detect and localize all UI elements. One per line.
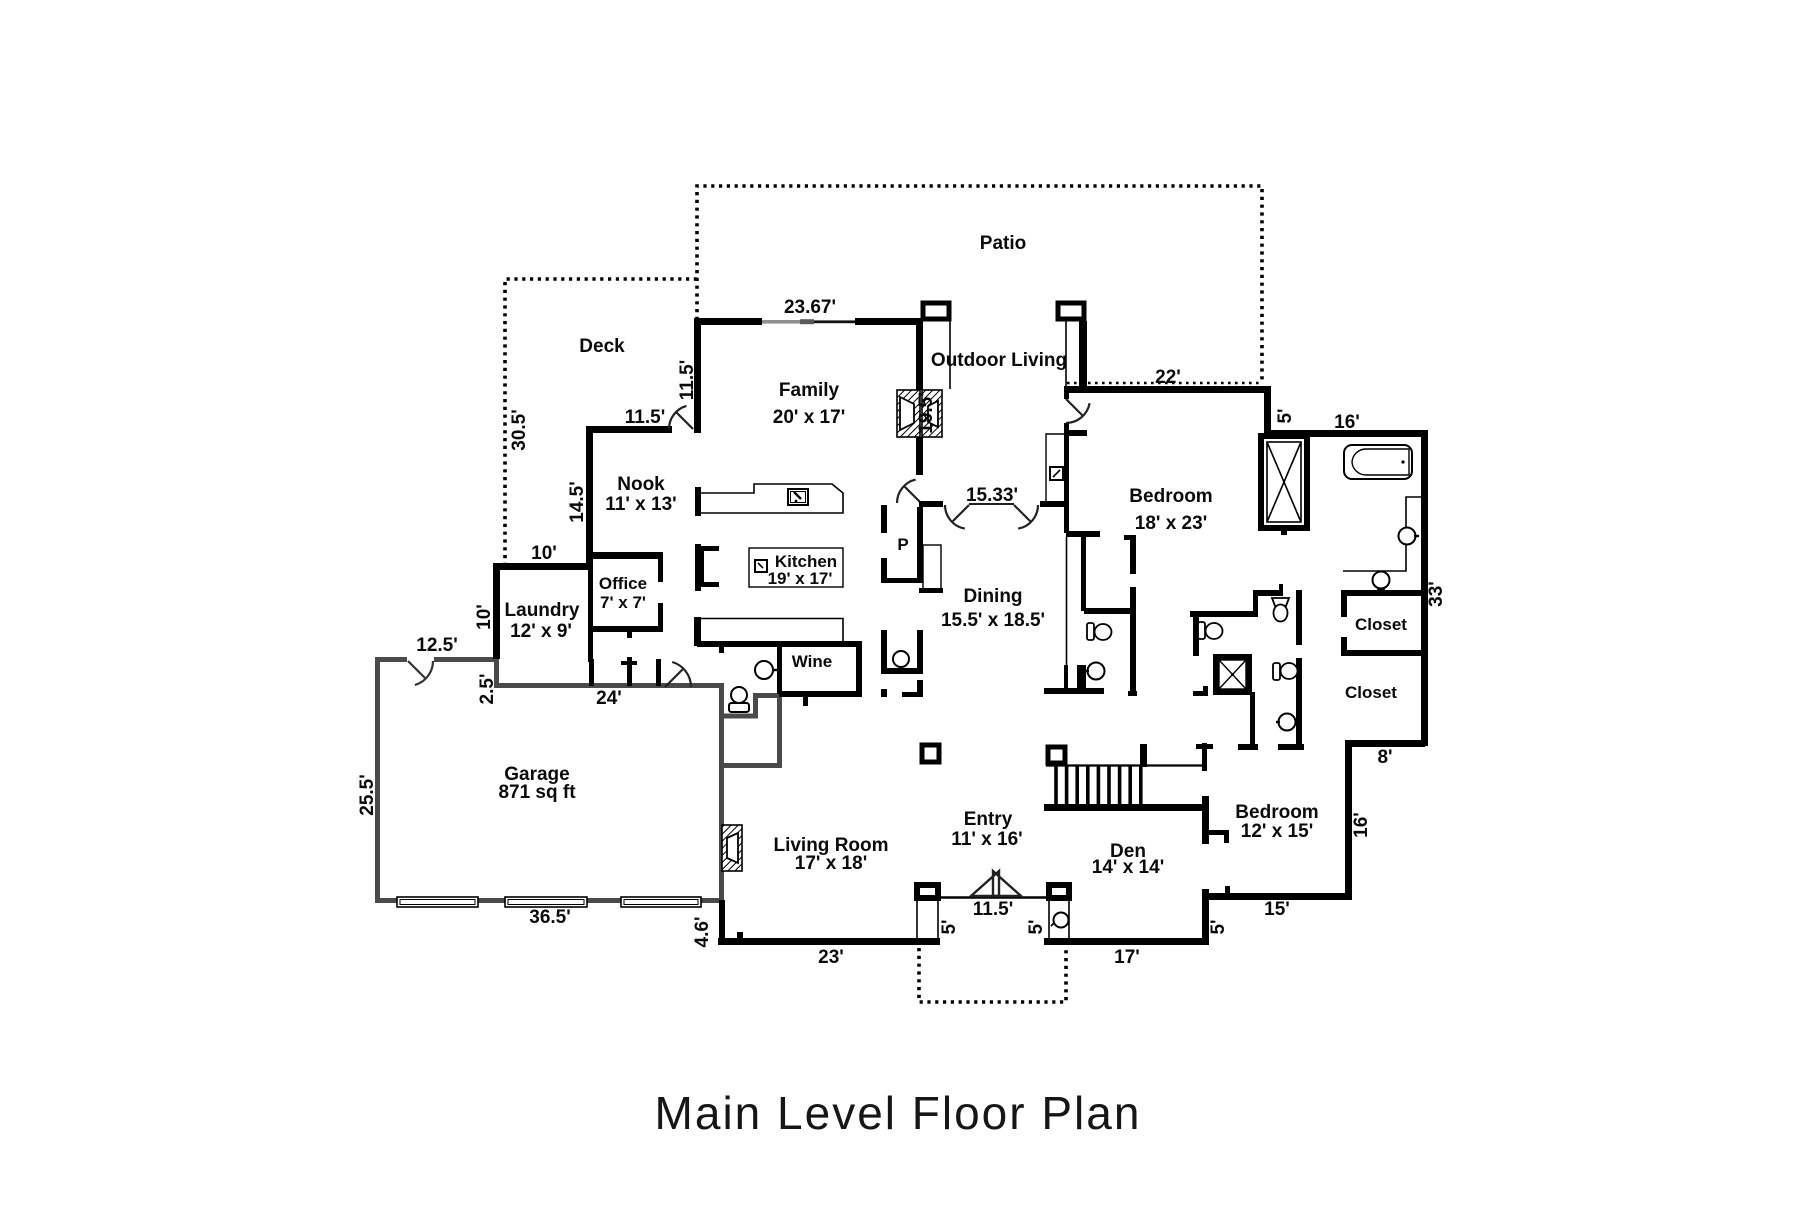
svg-text:11.5': 11.5' (677, 360, 698, 400)
svg-text:Closet: Closet (1355, 615, 1407, 634)
svg-text:20' x 17': 20' x 17' (773, 407, 845, 428)
svg-text:16': 16' (1351, 812, 1372, 838)
svg-text:Bedroom: Bedroom (1235, 802, 1318, 823)
svg-text:12.5': 12.5' (416, 635, 458, 656)
svg-text:2.5': 2.5' (477, 674, 498, 705)
svg-text:14.5': 14.5' (567, 481, 588, 523)
svg-text:17': 17' (1114, 947, 1140, 968)
svg-text:11' x 16': 11' x 16' (951, 829, 1022, 850)
svg-text:19' x 17': 19' x 17' (768, 569, 833, 588)
svg-text:Office: Office (599, 574, 647, 593)
svg-text:5': 5' (939, 919, 960, 934)
svg-text:8': 8' (1377, 747, 1392, 768)
svg-text:10': 10' (531, 543, 557, 564)
svg-text:Nook: Nook (617, 474, 665, 495)
svg-text:Patio: Patio (980, 233, 1026, 254)
svg-text:11.5': 11.5' (625, 407, 665, 428)
svg-text:16': 16' (1334, 412, 1360, 433)
svg-text:Bedroom: Bedroom (1129, 486, 1212, 507)
svg-text:4.6': 4.6' (692, 917, 713, 948)
svg-text:25.5': 25.5' (357, 774, 378, 816)
svg-text:5': 5' (1275, 408, 1296, 423)
svg-text:P: P (897, 535, 908, 554)
svg-text:Wine: Wine (792, 652, 832, 671)
svg-text:Family: Family (779, 380, 840, 401)
svg-text:Main Level Floor Plan: Main Level Floor Plan (655, 1087, 1142, 1139)
svg-text:17' x 18': 17' x 18' (795, 853, 867, 874)
svg-text:30.5': 30.5' (509, 409, 530, 451)
svg-text:Dining: Dining (963, 586, 1022, 607)
svg-text:12' x 15': 12' x 15' (1241, 821, 1313, 842)
svg-text:11' x 13': 11' x 13' (605, 494, 676, 515)
svg-text:15': 15' (1264, 899, 1290, 920)
svg-text:14' x 14': 14' x 14' (1092, 857, 1164, 878)
svg-text:11.5': 11.5' (973, 899, 1013, 920)
svg-text:23.67': 23.67' (784, 297, 836, 318)
svg-text:Closet: Closet (1345, 683, 1397, 702)
svg-text:24': 24' (596, 688, 622, 709)
svg-text:15.33': 15.33' (966, 485, 1018, 506)
svg-text:5': 5' (1026, 919, 1047, 934)
svg-text:7' x 7': 7' x 7' (600, 593, 646, 612)
svg-text:18' x 23': 18' x 23' (1135, 513, 1207, 534)
svg-text:15.5' x 18.5': 15.5' x 18.5' (941, 610, 1045, 631)
svg-text:Deck: Deck (579, 336, 625, 357)
svg-text:36.5': 36.5' (529, 907, 571, 928)
svg-text:Outdoor Living: Outdoor Living (931, 350, 1067, 371)
svg-text:5': 5' (1208, 919, 1229, 934)
svg-text:Entry: Entry (964, 809, 1013, 830)
svg-text:10': 10' (474, 604, 495, 630)
svg-text:12' x 9': 12' x 9' (510, 621, 572, 642)
svg-text:Laundry: Laundry (505, 600, 580, 621)
svg-text:23': 23' (818, 947, 844, 968)
svg-text:22': 22' (1155, 367, 1181, 388)
svg-text:19.5': 19.5' (916, 392, 937, 434)
svg-text:33': 33' (1426, 581, 1447, 607)
svg-text:871 sq ft: 871 sq ft (498, 782, 576, 803)
